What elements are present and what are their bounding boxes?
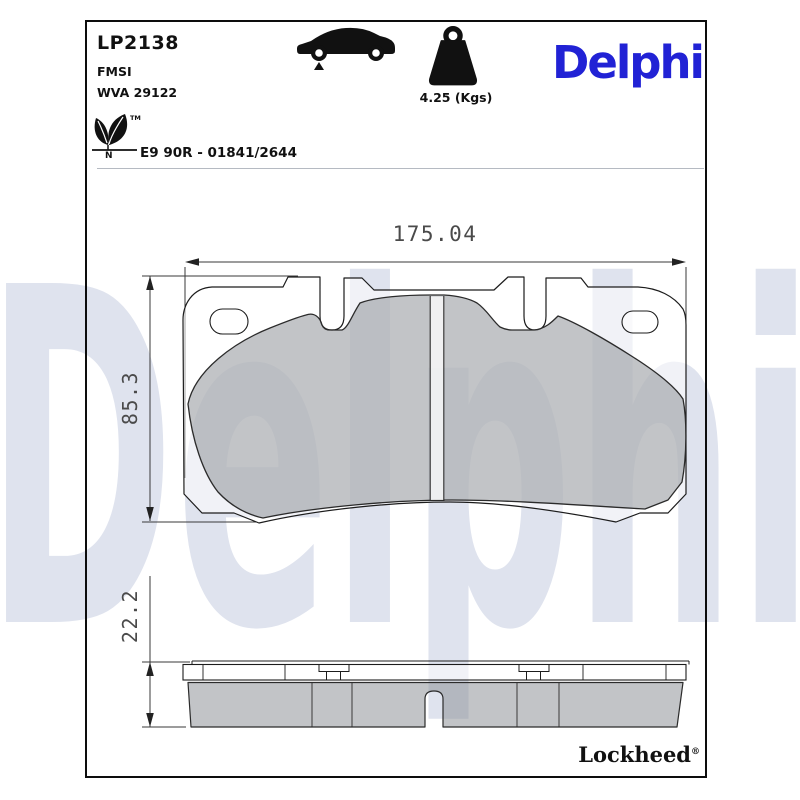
registered-mark: ®: [691, 747, 700, 757]
arrowhead-up: [146, 276, 154, 290]
dimension-thickness: [142, 576, 190, 727]
dim-height-label: 85.3: [118, 371, 142, 425]
pad-centre-slot: [430, 297, 444, 501]
arrowhead-right: [672, 258, 686, 266]
page: Delphi LP2138 FMSI WVA 29122 4.25 (Kgs) …: [0, 0, 800, 800]
backplate-hole-left: [210, 309, 248, 334]
arrowhead-left: [185, 258, 199, 266]
arrowhead-up: [146, 662, 154, 676]
friction-pad-side: [188, 683, 683, 728]
backplate-hole-right: [622, 311, 658, 333]
lockheed-text: Lockheed: [578, 742, 691, 767]
side-view: [183, 661, 689, 727]
technical-drawing: 175.04 85.3 22.2: [0, 0, 800, 800]
dim-thickness-label: 22.2: [118, 589, 142, 643]
arrowhead-down: [146, 713, 154, 727]
dim-width-label: 175.04: [393, 222, 478, 246]
arrowhead-down: [146, 507, 154, 521]
lockheed-logo: Lockheed®: [520, 742, 700, 767]
backplate-side: [183, 665, 686, 681]
